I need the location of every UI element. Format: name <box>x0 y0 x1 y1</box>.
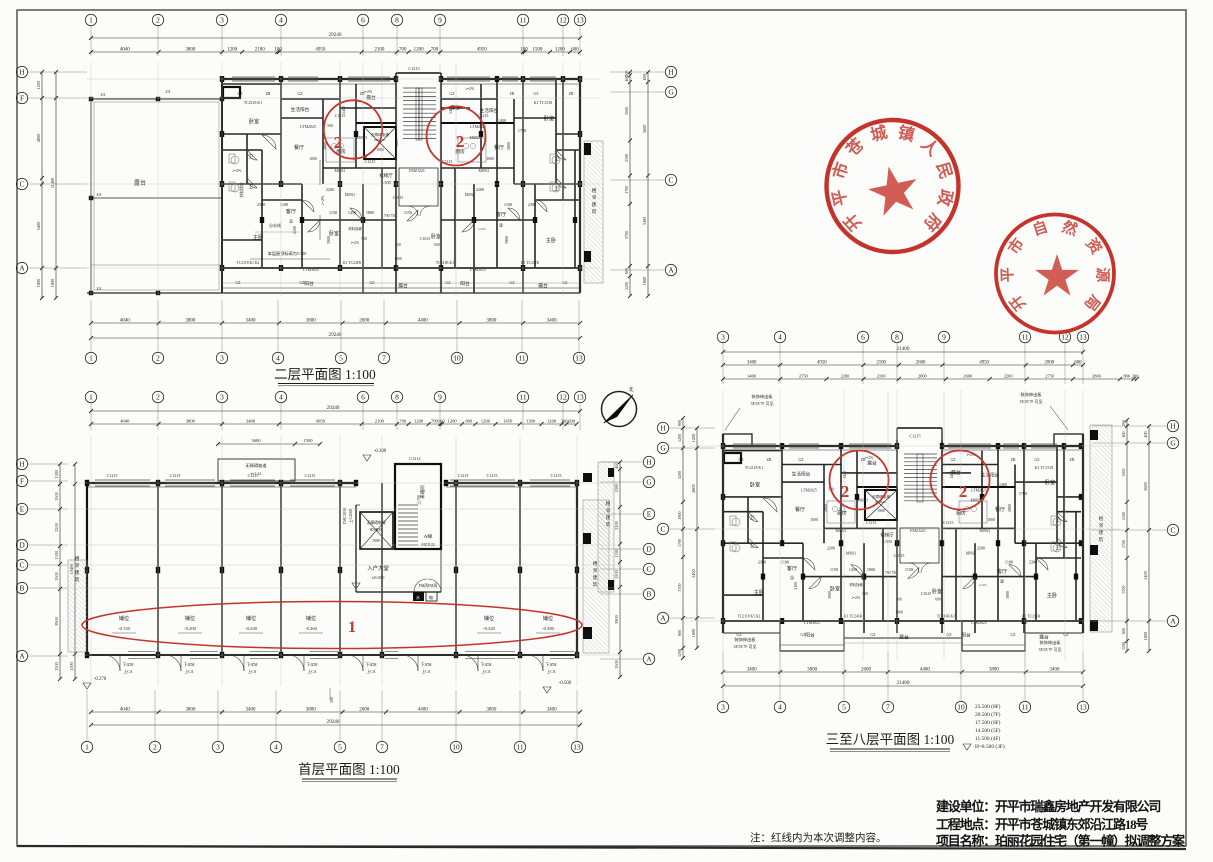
svg-text:餐厅: 餐厅 <box>494 144 504 151</box>
svg-text:厨房: 厨房 <box>837 510 847 517</box>
svg-text:1: 1 <box>89 393 93 402</box>
svg-text:1800: 1800 <box>691 629 696 637</box>
svg-text:下JZM: 下JZM <box>123 663 135 667</box>
svg-text:2100: 2100 <box>876 360 886 365</box>
svg-text:GZ: GZ <box>533 92 539 96</box>
svg-text:1: 1 <box>89 16 93 25</box>
svg-text:工程地点：开平市苍城镇东郊沿江路18号: 工程地点：开平市苍城镇东郊沿江路18号 <box>936 817 1148 832</box>
svg-text:材料找坡: 材料找坡 <box>849 582 863 587</box>
svg-text:露台: 露台 <box>867 460 877 467</box>
svg-text:400: 400 <box>614 461 619 468</box>
svg-text:主卧: 主卧 <box>754 588 764 596</box>
svg-text:装饰伸出板: 装饰伸出板 <box>1021 391 1043 398</box>
svg-text:1800: 1800 <box>642 277 647 285</box>
svg-text:C1215: C1215 <box>909 434 920 439</box>
svg-text:阳台: 阳台 <box>805 632 815 639</box>
svg-text:卧室: 卧室 <box>1045 478 1055 486</box>
svg-text:-0.150: -0.150 <box>118 626 131 631</box>
svg-text:3800: 3800 <box>185 707 196 712</box>
svg-text:4950: 4950 <box>316 418 326 423</box>
svg-text:4040: 4040 <box>120 318 131 323</box>
svg-text:GZ: GZ <box>299 281 305 285</box>
svg-text:项目名称：珀丽花园住宅（第一幢）拟调整方案: 项目名称：珀丽花园住宅（第一幢）拟调整方案 <box>936 834 1186 849</box>
svg-text:M0921: M0921 <box>357 136 368 140</box>
svg-text:邻: 邻 <box>1099 522 1104 529</box>
svg-text:700 750: 700 750 <box>384 214 396 218</box>
svg-text:H=8.500 (3F): H=8.500 (3F) <box>975 743 1005 750</box>
svg-text:二层平面图 1:100: 二层平面图 1:100 <box>274 367 376 382</box>
svg-text:下JZM: 下JZM <box>307 663 319 667</box>
svg-text:11.500 (4F): 11.500 (4F) <box>975 735 1000 742</box>
svg-text:2100: 2100 <box>877 373 887 378</box>
svg-text:ZB: ZB <box>1070 458 1075 462</box>
svg-text:3800: 3800 <box>989 667 1000 672</box>
svg-text:ZA: ZA <box>96 193 101 197</box>
svg-text:8: 8 <box>895 333 899 342</box>
svg-text:11: 11 <box>1021 703 1028 712</box>
svg-text:无障碍电梯: 无障碍电梯 <box>371 132 389 137</box>
svg-text:1200: 1200 <box>1121 642 1126 650</box>
svg-text:600: 600 <box>571 47 579 52</box>
svg-text:3500: 3500 <box>624 107 629 115</box>
svg-text:筑: 筑 <box>75 576 80 583</box>
svg-text:注：红线内为本次调整内容。: 注：红线内为本次调整内容。 <box>750 831 887 844</box>
svg-text:GZ: GZ <box>736 633 742 637</box>
svg-text:4400: 4400 <box>418 318 429 323</box>
svg-text:本层屋顶标高为5.500: 本层屋顶标高为5.500 <box>268 250 307 257</box>
svg-text:1700: 1700 <box>518 128 526 133</box>
svg-text:下JZM: 下JZM <box>247 663 259 667</box>
svg-text:3800: 3800 <box>486 707 497 712</box>
svg-text:1400: 1400 <box>341 106 346 114</box>
svg-text:上CA: 上CA <box>481 669 490 674</box>
svg-text:i=2%: i=2% <box>979 583 987 587</box>
svg-text:卫: 卫 <box>1056 517 1061 522</box>
svg-text:4: 4 <box>279 16 283 25</box>
svg-text:i=2%: i=2% <box>478 227 486 231</box>
svg-text:A: A <box>660 614 666 623</box>
svg-text:13: 13 <box>1079 333 1087 342</box>
svg-text:3: 3 <box>721 703 725 712</box>
svg-text:600: 600 <box>677 420 682 426</box>
svg-text:3: 3 <box>220 393 224 402</box>
svg-text:铺位: 铺位 <box>484 614 494 622</box>
svg-text:3400: 3400 <box>246 707 257 712</box>
svg-text:1700: 1700 <box>1019 491 1027 496</box>
svg-text:上CA: 上CA <box>421 669 430 674</box>
svg-text:600: 600 <box>1121 628 1126 634</box>
svg-text:2: 2 <box>153 743 157 752</box>
svg-text:②: ② <box>499 223 504 229</box>
svg-text:29240: 29240 <box>329 332 342 338</box>
svg-text:-0.380: -0.380 <box>542 626 555 631</box>
svg-text:C1615: C1615 <box>393 195 404 200</box>
svg-text:C1215: C1215 <box>551 473 562 478</box>
svg-text:1200: 1200 <box>414 47 425 52</box>
svg-text:C1215: C1215 <box>170 473 181 478</box>
svg-text:9: 9 <box>438 16 442 25</box>
svg-text:2800: 2800 <box>823 504 828 512</box>
svg-text:主卧: 主卧 <box>546 236 556 244</box>
svg-text:C: C <box>20 561 25 570</box>
svg-text:21400: 21400 <box>897 680 910 686</box>
svg-text:K1 TC1518: K1 TC1518 <box>1035 466 1053 470</box>
svg-text:4: 4 <box>778 333 782 342</box>
svg-text:i=2%: i=2% <box>852 596 861 600</box>
svg-text:卧室: 卧室 <box>329 230 339 237</box>
svg-text:下JZM: 下JZM <box>366 663 378 667</box>
svg-text:铺位: 铺位 <box>119 614 129 622</box>
svg-text:ZA: ZA <box>100 93 105 97</box>
svg-text:TC2118 K1: TC2118 K1 <box>244 101 262 105</box>
svg-text:3: 3 <box>721 333 725 342</box>
svg-text:铺位: 铺位 <box>543 614 553 622</box>
svg-text:C1215: C1215 <box>248 473 259 478</box>
svg-text:1200: 1200 <box>677 434 682 442</box>
svg-text:卫: 卫 <box>555 156 560 161</box>
svg-text:上CA: 上CA <box>366 669 375 674</box>
svg-text:2200: 2200 <box>1004 373 1014 378</box>
svg-text:上CA: 上CA <box>247 669 256 674</box>
svg-text:2: 2 <box>841 482 850 501</box>
svg-text:2100: 2100 <box>375 418 385 423</box>
svg-text:GZ: GZ <box>369 281 375 285</box>
svg-text:8: 8 <box>395 393 399 402</box>
svg-text:2200: 2200 <box>54 522 59 532</box>
svg-text:GZ: GZ <box>235 281 241 285</box>
svg-text:ZB: ZB <box>1011 458 1016 462</box>
svg-text:700: 700 <box>399 47 407 52</box>
svg-text:700: 700 <box>399 418 407 423</box>
svg-text:H: H <box>668 68 674 77</box>
svg-text:700 750: 700 750 <box>885 571 897 575</box>
svg-text:1400: 1400 <box>999 482 1007 487</box>
svg-text:阳台: 阳台 <box>460 280 470 287</box>
svg-text:1800: 1800 <box>895 611 903 615</box>
svg-text:7: 7 <box>886 703 890 712</box>
svg-text:3900: 3900 <box>54 616 59 626</box>
svg-text:2200: 2200 <box>614 520 619 530</box>
svg-text:10: 10 <box>453 354 461 363</box>
svg-text:2600: 2600 <box>359 707 370 712</box>
svg-text:7: 7 <box>380 743 384 752</box>
svg-text:无障碍电梯: 无障碍电梯 <box>367 520 386 525</box>
svg-text:29240: 29240 <box>327 405 340 411</box>
svg-text:3800: 3800 <box>807 667 818 672</box>
svg-text:F: F <box>20 477 24 486</box>
svg-text:-0.200: -0.200 <box>184 626 197 631</box>
svg-text:LTM3025: LTM3025 <box>303 268 319 272</box>
svg-text:5400: 5400 <box>1143 571 1148 579</box>
svg-text:1700: 1700 <box>1121 540 1126 548</box>
svg-text:1400: 1400 <box>498 118 506 123</box>
svg-text:卫: 卫 <box>249 154 254 159</box>
svg-text:1700: 1700 <box>677 539 682 547</box>
svg-text:邻: 邻 <box>593 567 598 574</box>
svg-text:1800: 1800 <box>867 567 875 572</box>
svg-text:1200: 1200 <box>555 47 566 52</box>
svg-text:1100: 1100 <box>504 202 512 207</box>
svg-text:2200: 2200 <box>326 187 334 192</box>
svg-text:2: 2 <box>156 354 160 363</box>
svg-text:①: ① <box>289 219 294 225</box>
svg-text:3900: 3900 <box>827 591 832 599</box>
svg-text:C1215: C1215 <box>458 473 469 478</box>
svg-text:A: A <box>1170 617 1176 626</box>
svg-text:1900: 1900 <box>372 538 380 543</box>
svg-text:5: 5 <box>842 703 846 712</box>
svg-text:GZ: GZ <box>509 281 515 285</box>
svg-text:C1215: C1215 <box>408 66 419 71</box>
svg-text:600: 600 <box>568 418 576 423</box>
svg-text:E: E <box>20 505 25 514</box>
svg-text:露台: 露台 <box>899 634 909 641</box>
svg-text:上CA: 上CA <box>546 669 555 674</box>
svg-text:1600: 1600 <box>677 512 682 520</box>
svg-text:4800: 4800 <box>691 484 696 492</box>
svg-text:GZ: GZ <box>950 458 956 462</box>
svg-text:TC241B K1: TC241B K1 <box>436 261 454 265</box>
svg-text:600: 600 <box>624 268 629 274</box>
svg-text:2: 2 <box>156 16 160 25</box>
svg-text:1150: 1150 <box>329 210 337 215</box>
svg-text:GZ: GZ <box>1010 633 1016 637</box>
svg-text:10: 10 <box>957 703 965 712</box>
svg-text:C: C <box>1171 526 1176 535</box>
svg-text:餐厅: 餐厅 <box>294 144 304 151</box>
svg-text:GZ: GZ <box>297 92 303 96</box>
svg-text:卧室: 卧室 <box>932 588 942 595</box>
svg-text:12: 12 <box>559 393 567 402</box>
svg-text:装饰伸出板: 装饰伸出板 <box>735 636 757 643</box>
svg-text:2100: 2100 <box>624 154 629 162</box>
svg-text:2200: 2200 <box>476 187 484 192</box>
svg-text:20.500 (7F): 20.500 (7F) <box>975 711 1001 718</box>
svg-text:11: 11 <box>519 393 526 402</box>
svg-text:1100: 1100 <box>781 560 789 565</box>
svg-text:建: 建 <box>592 201 597 208</box>
svg-text:-0.320: -0.320 <box>483 626 496 631</box>
svg-text:1200: 1200 <box>36 80 41 90</box>
svg-text:12: 12 <box>1061 333 1069 342</box>
svg-text:LTM3025: LTM3025 <box>470 268 486 272</box>
svg-text:生活阳台: 生活阳台 <box>291 106 310 113</box>
svg-text:1200: 1200 <box>447 418 457 423</box>
svg-text:±0.000: ±0.000 <box>372 575 386 580</box>
svg-text:3900: 3900 <box>504 236 509 244</box>
svg-text:4: 4 <box>274 743 278 752</box>
svg-text:1: 1 <box>85 743 89 752</box>
svg-text:13: 13 <box>576 16 584 25</box>
svg-text:800: 800 <box>395 243 401 247</box>
svg-text:4040: 4040 <box>120 47 131 52</box>
svg-text:C1215: C1215 <box>107 473 118 478</box>
svg-text:3800: 3800 <box>306 707 317 712</box>
svg-text:LTM2025: LTM2025 <box>300 125 316 129</box>
svg-text:600: 600 <box>935 598 941 602</box>
svg-text:2: 2 <box>959 482 968 501</box>
svg-text:5600: 5600 <box>1143 482 1148 490</box>
svg-text:700: 700 <box>431 47 439 52</box>
svg-text:10400: 10400 <box>69 564 74 574</box>
svg-text:i=2%: i=2% <box>320 195 325 205</box>
svg-text:A: A <box>646 655 652 664</box>
svg-text:H: H <box>660 424 666 433</box>
svg-text:卧室: 卧室 <box>750 481 760 489</box>
svg-text:露台: 露台 <box>1039 634 1049 641</box>
svg-text:3800: 3800 <box>306 318 317 323</box>
svg-text:G: G <box>668 88 674 97</box>
svg-text:1500: 1500 <box>303 438 313 443</box>
svg-text:TC2118 K1 K2: TC2118 K1 K2 <box>237 261 260 265</box>
svg-text:6: 6 <box>361 393 365 402</box>
svg-text:1200: 1200 <box>54 469 59 479</box>
svg-text:3400: 3400 <box>747 373 757 378</box>
svg-text:M0921: M0921 <box>836 529 847 533</box>
svg-text:13: 13 <box>576 393 584 402</box>
svg-text:C1215: C1215 <box>487 473 498 478</box>
svg-text:200: 200 <box>1121 420 1126 426</box>
svg-text:C: C <box>20 180 25 189</box>
svg-text:源: 源 <box>1093 267 1111 282</box>
svg-text:C1215: C1215 <box>866 520 877 525</box>
svg-text:1900: 1900 <box>376 148 384 152</box>
svg-text:1000: 1000 <box>987 518 995 522</box>
svg-text:M0921: M0921 <box>846 551 857 555</box>
svg-text:13: 13 <box>575 354 583 363</box>
svg-text:GZ: GZ <box>946 633 952 637</box>
svg-text:23.500 (8F): 23.500 (8F) <box>975 703 1001 710</box>
svg-text:露台: 露台 <box>398 282 408 289</box>
svg-text:10: 10 <box>452 743 460 752</box>
svg-text:1000: 1000 <box>309 157 317 161</box>
svg-text:北: 北 <box>628 386 633 393</box>
svg-text:K1 TC241B: K1 TC241B <box>844 614 863 618</box>
svg-text:露台: 露台 <box>366 94 376 101</box>
svg-text:卫: 卫 <box>555 186 560 191</box>
svg-text:B: B <box>647 590 652 599</box>
svg-text:3400: 3400 <box>547 707 558 712</box>
svg-text:①: ① <box>790 575 795 581</box>
svg-text:F: F <box>20 94 24 103</box>
svg-text:3500: 3500 <box>1121 469 1126 477</box>
svg-text:建: 建 <box>606 514 611 521</box>
svg-text:1000: 1000 <box>486 157 494 161</box>
svg-text:3900: 3900 <box>1005 591 1010 599</box>
svg-text:2600: 2600 <box>963 373 973 378</box>
svg-text:GZ: GZ <box>870 633 876 637</box>
svg-text:H: H <box>1170 422 1176 431</box>
svg-text:400: 400 <box>1121 432 1126 438</box>
svg-text:3400: 3400 <box>246 418 256 423</box>
svg-text:ZA: ZA <box>96 287 101 291</box>
svg-text:2800: 2800 <box>506 142 511 150</box>
svg-text:下JZM: 下JZM <box>421 663 433 667</box>
svg-text:LTM2025: LTM2025 <box>971 488 987 492</box>
svg-text:500: 500 <box>361 237 367 241</box>
svg-text:5600: 5600 <box>642 125 647 133</box>
svg-text:11: 11 <box>518 354 525 363</box>
svg-text:800: 800 <box>465 418 473 423</box>
svg-text:1500: 1500 <box>614 659 619 669</box>
svg-text:-0.230: -0.230 <box>245 626 258 631</box>
svg-text:600: 600 <box>677 630 682 636</box>
svg-text:17.500 (6F): 17.500 (6F) <box>975 719 1001 726</box>
svg-text:3400: 3400 <box>547 318 558 323</box>
svg-text:下JZM: 下JZM <box>184 663 196 667</box>
svg-text:300: 300 <box>561 418 569 423</box>
svg-text:2200: 2200 <box>977 546 985 551</box>
svg-text:3400: 3400 <box>747 360 757 365</box>
svg-text:1800: 1800 <box>1143 632 1148 640</box>
svg-text:GZ: GZ <box>449 92 455 96</box>
svg-text:C1212: C1212 <box>409 456 420 461</box>
svg-text:4950: 4950 <box>315 47 326 52</box>
svg-text:M0921: M0921 <box>966 551 977 555</box>
svg-text:H: H <box>19 460 25 469</box>
svg-text:1800: 1800 <box>366 210 374 215</box>
svg-text:11: 11 <box>1021 333 1028 342</box>
svg-text:生活阳台: 生活阳台 <box>792 471 811 478</box>
svg-text:相: 相 <box>75 555 80 562</box>
svg-text:2300: 2300 <box>614 483 619 493</box>
svg-text:铺位: 铺位 <box>185 614 195 622</box>
svg-text:5400: 5400 <box>691 569 696 577</box>
svg-text:1200: 1200 <box>227 47 238 52</box>
svg-text:FM丙FM丙: FM丙FM丙 <box>419 583 438 588</box>
svg-text:M0921: M0921 <box>465 193 476 197</box>
svg-text:2100: 2100 <box>374 47 385 52</box>
svg-text:4800: 4800 <box>36 133 41 143</box>
svg-text:-0.270: -0.270 <box>94 677 107 682</box>
svg-text:K1 TC1518: K1 TC1518 <box>534 101 552 105</box>
svg-text:4400: 4400 <box>920 667 931 672</box>
svg-text:TC2118 K1 K2: TC2118 K1 K2 <box>738 614 761 618</box>
svg-text:1450: 1450 <box>503 418 513 423</box>
svg-text:1800: 1800 <box>394 257 402 261</box>
svg-text:LTM3025: LTM3025 <box>804 621 820 625</box>
svg-text:露台: 露台 <box>134 179 146 187</box>
svg-text:1200: 1200 <box>691 434 696 442</box>
svg-text:2: 2 <box>334 133 343 152</box>
svg-text:i=2%: i=2% <box>364 90 373 94</box>
svg-text:候梯厅: 候梯厅 <box>379 172 393 179</box>
svg-text:M0921: M0921 <box>470 136 481 140</box>
svg-text:6: 6 <box>861 333 865 342</box>
svg-text:TC241B K1: TC241B K1 <box>937 614 955 618</box>
svg-text:4950: 4950 <box>817 360 827 365</box>
svg-text:邻: 邻 <box>606 507 611 514</box>
svg-text:600: 600 <box>1074 360 1082 365</box>
svg-text:3700: 3700 <box>624 231 629 239</box>
svg-text:上CA: 上CA <box>184 669 193 674</box>
svg-text:建: 建 <box>593 574 598 581</box>
svg-text:筑: 筑 <box>593 581 598 588</box>
svg-text:TC2118 K1: TC2118 K1 <box>745 466 763 470</box>
svg-text:C1615: C1615 <box>921 592 931 596</box>
svg-text:2800: 2800 <box>1092 373 1102 378</box>
svg-text:2100: 2100 <box>793 582 798 590</box>
svg-text:下JZM: 下JZM <box>481 663 493 667</box>
svg-text:6: 6 <box>361 16 365 25</box>
svg-text:GZ: GZ <box>562 281 568 285</box>
svg-text:筑: 筑 <box>1099 536 1104 543</box>
svg-text:1150: 1150 <box>905 567 913 572</box>
svg-text:1100: 1100 <box>1005 560 1013 565</box>
svg-text:D: D <box>646 545 652 554</box>
svg-text:2200: 2200 <box>841 373 851 378</box>
svg-text:入户大堂: 入户大堂 <box>367 564 389 572</box>
